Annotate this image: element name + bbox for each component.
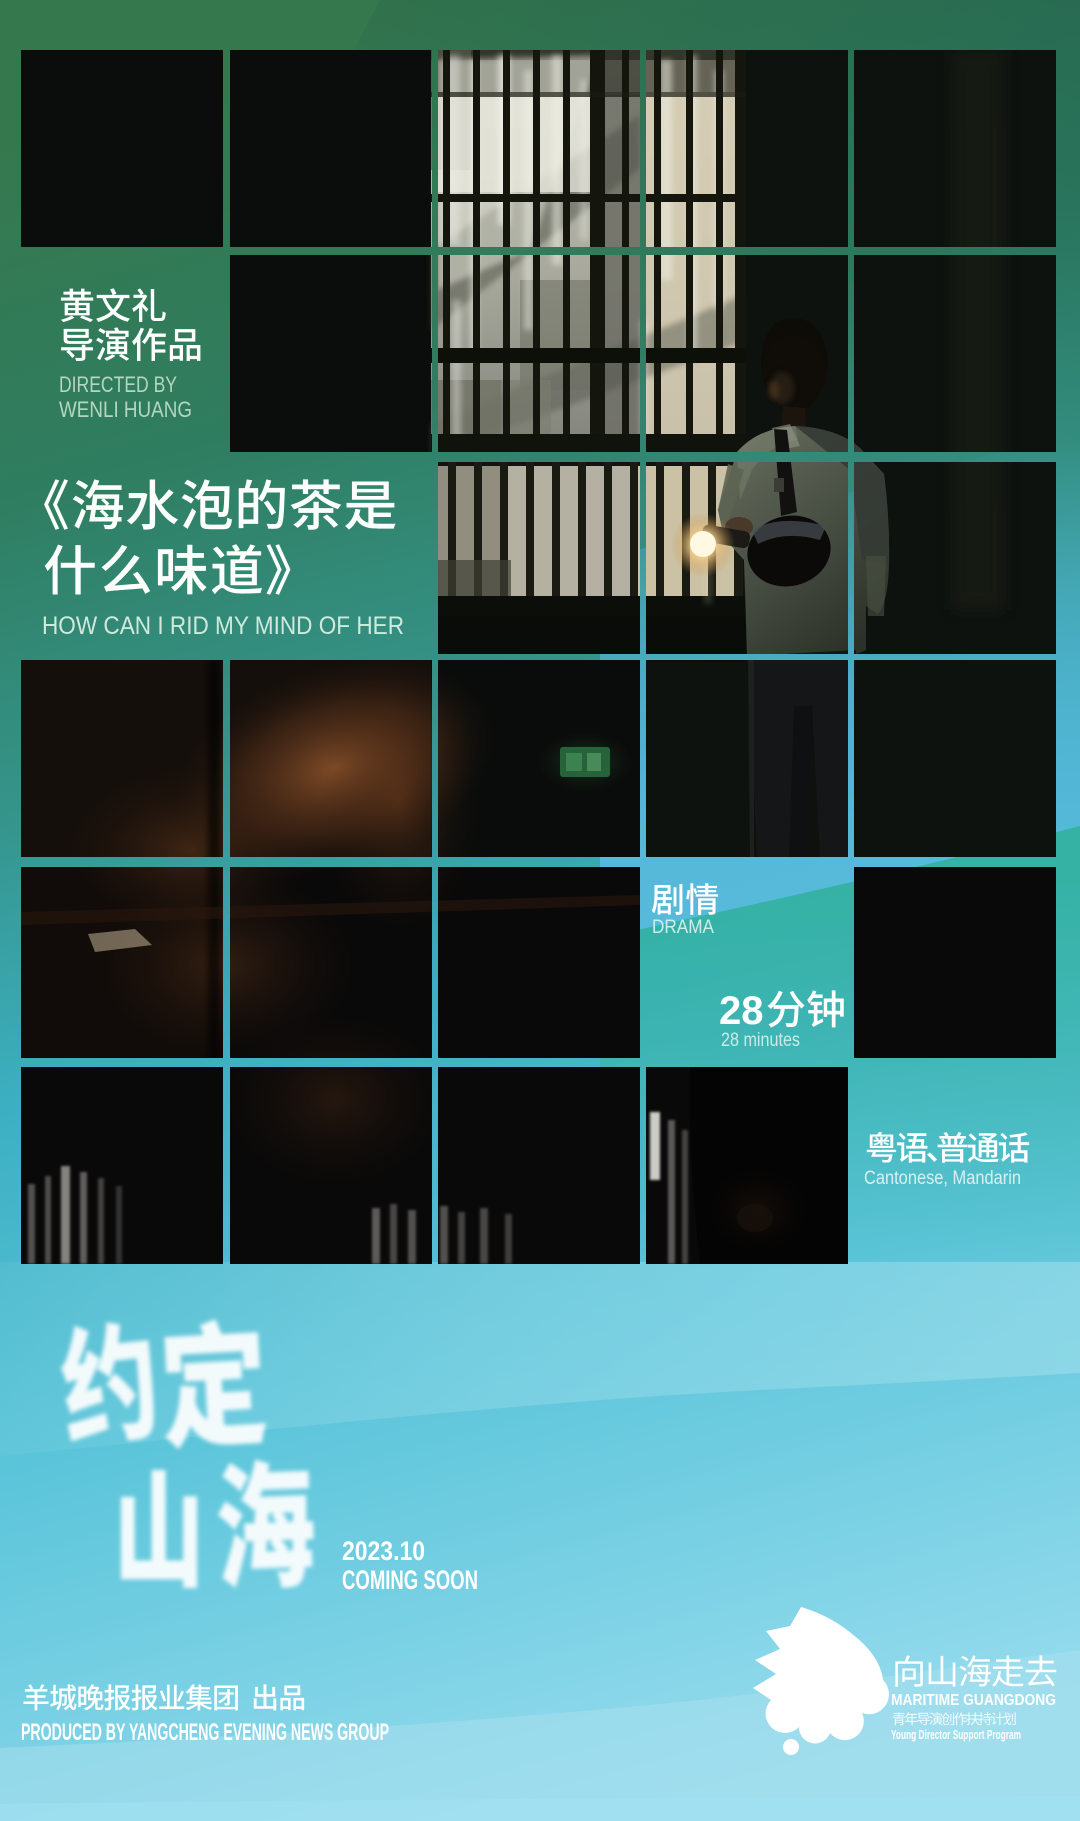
svg-text:PRODUCED BY YANGCHENG EVENING: PRODUCED BY YANGCHENG EVENING NEWS GROUP <box>21 1719 389 1746</box>
svg-text:2023.10: 2023.10 <box>342 1536 425 1566</box>
svg-text:28 minutes: 28 minutes <box>721 1029 800 1051</box>
svg-text:WENLI HUANG: WENLI HUANG <box>59 397 192 422</box>
svg-text:HOW CAN I RID MY MIND OF HER: HOW CAN I RID MY MIND OF HER <box>42 612 404 640</box>
svg-text:Young Director Support Program: Young Director Support Program <box>891 1728 1021 1742</box>
svg-text:28: 28 <box>719 989 764 1033</box>
svg-text:MARITIME GUANGDONG: MARITIME GUANGDONG <box>891 1692 1056 1709</box>
svg-text:Cantonese, Mandarin: Cantonese, Mandarin <box>864 1168 1021 1189</box>
svg-text:DIRECTED BY: DIRECTED BY <box>59 372 177 397</box>
svg-text:COMING SOON: COMING SOON <box>342 1565 478 1595</box>
svg-text:DRAMA: DRAMA <box>652 917 714 938</box>
